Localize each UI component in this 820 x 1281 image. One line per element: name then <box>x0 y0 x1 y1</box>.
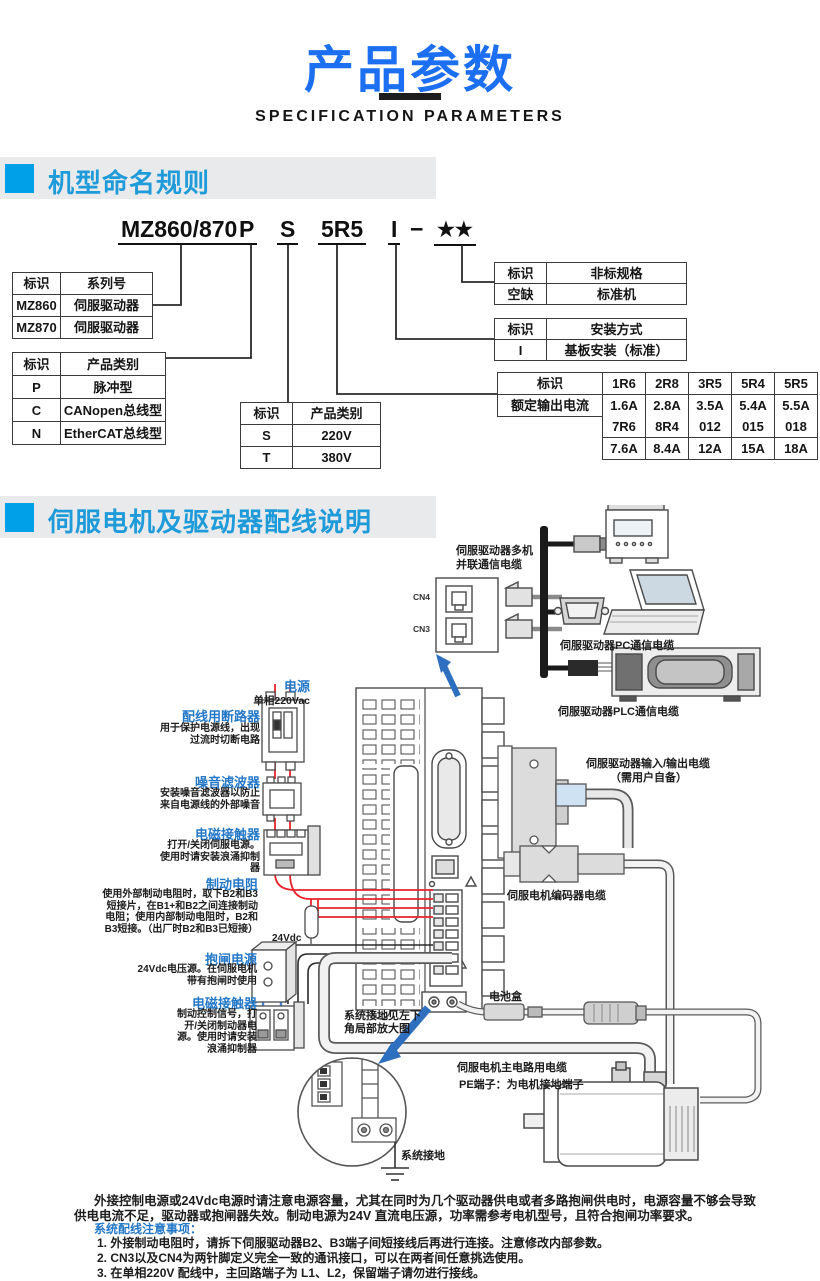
table-cell: 1.6A <box>603 395 646 417</box>
table-header-cell: 标识 <box>495 263 547 284</box>
table-voltage: 标识 产品类别 S 220V T 380V <box>240 402 381 469</box>
section-naming-bar: 机型命名规则 <box>0 157 436 199</box>
table-header-cell: 系列号 <box>61 273 153 295</box>
label-main-cable-line1: 伺服电机主电路用电缆 <box>457 1059 567 1075</box>
contactor-2 <box>250 1002 304 1050</box>
label-filter-desc: 安装噪音滤波器以防止来自电源线的外部噪音 <box>160 788 260 811</box>
label-24vdc: 24Vdc <box>272 933 301 944</box>
table-cell: 5.4A <box>732 395 775 417</box>
brake-power-supply <box>252 942 296 1002</box>
table-cell: 2.8A <box>646 395 689 417</box>
table-cell: 脉冲型 <box>61 376 166 399</box>
io-connector <box>498 746 586 858</box>
table-cell: EtherCAT总线型 <box>61 422 166 445</box>
table-header-cell: 标识 <box>13 273 61 295</box>
label-main-cable-line2: PE端子：为电机接地端子 <box>459 1076 584 1092</box>
table-cell: I <box>495 340 547 361</box>
ground-detail-circle <box>298 1058 409 1180</box>
wiring-diagram <box>0 505 820 1200</box>
table-cell: 12A <box>689 438 732 460</box>
table-cell: N <box>13 422 61 445</box>
table-current-upper: 标识 1R6 2R8 3R5 5R4 5R5 额定输出电流 1.6A 2.8A … <box>497 372 818 417</box>
label-pc-cable: 伺服驱动器PC通信电缆 <box>560 637 674 653</box>
page-title: 产品参数 <box>0 30 820 102</box>
label-cn3-port: CN3 <box>413 624 430 634</box>
table-header-cell: 018 <box>775 416 818 438</box>
section-square-icon <box>5 164 34 193</box>
table-cell: 标准机 <box>547 284 687 305</box>
label-system-ground: 系统接地 <box>401 1147 445 1163</box>
table-cell: S <box>241 425 293 447</box>
table-header-cell: 标识 <box>13 353 61 376</box>
table-header-cell: 1R6 <box>603 373 646 395</box>
label-multi-drive-line2: 并联通信电缆 <box>456 556 522 572</box>
table-cell: CANopen总线型 <box>61 399 166 422</box>
table-header-cell: 012 <box>689 416 732 438</box>
page-subtitle: SPECIFICATION PARAMETERS <box>0 108 820 126</box>
table-header-cell: 产品类别 <box>293 403 381 425</box>
label-contactor1-desc: 打开/关闭伺服电源。使用时请安装浪涌抑制器 <box>160 840 260 875</box>
table-header-cell: 产品类别 <box>61 353 166 376</box>
table-cell: 15A <box>732 438 775 460</box>
table-cell: MZ870 <box>13 317 61 339</box>
section-naming-heading: 机型命名规则 <box>48 163 210 200</box>
table-mounting: 标识 安装方式 I 基板安装（标准） <box>494 318 687 361</box>
noise-filter <box>263 777 301 821</box>
table-cell: 伺服驱动器 <box>61 295 153 317</box>
table-cell: C <box>13 399 61 422</box>
table-header-cell: 安装方式 <box>547 319 687 340</box>
label-battery-box: 电池盒 <box>489 988 522 1004</box>
label-encoder-cable: 伺服电机编码器电缆 <box>507 887 606 903</box>
table-product-type: 标识 产品类别 P 脉冲型 C CANopen总线型 N EtherCAT总线型 <box>12 352 166 445</box>
encoder-connector <box>504 846 624 882</box>
label-ground-note: 系统接地见左下角局部放大图 <box>344 1010 430 1036</box>
label-plc-cable: 伺服驱动器PLC通信电缆 <box>558 703 679 719</box>
table-cell: 空缺 <box>495 284 547 305</box>
contactor-1 <box>264 826 320 875</box>
table-header-cell: 非标规格 <box>547 263 687 284</box>
table-header-cell: 标识 <box>241 403 293 425</box>
label-power-sub: 单相220Vac <box>253 693 310 708</box>
table-cell: 18A <box>775 438 818 460</box>
table-cell: MZ860 <box>13 295 61 317</box>
table-series: 标识 系列号 MZ860 伺服驱动器 MZ870 伺服驱动器 <box>12 272 153 339</box>
table-header-cell: 标识 <box>498 373 603 395</box>
label-resistor-desc: 使用外部制动电阻时，取下B2和B3短接片，在B1+和B2之间连接制动电阻；使用内… <box>98 889 258 935</box>
table-header-cell: 8R4 <box>646 416 689 438</box>
table-header-cell: 3R5 <box>689 373 732 395</box>
table-nonstandard: 标识 非标规格 空缺 标准机 <box>494 262 687 305</box>
table-cell: 3.5A <box>689 395 732 417</box>
table-header-cell: 2R8 <box>646 373 689 395</box>
table-current-lower: 7R6 8R4 012 015 018 7.6A 8.4A 12A 15A 18… <box>602 416 818 460</box>
table-cell: 7.6A <box>603 438 646 460</box>
label-cn4-port: CN4 <box>413 592 430 602</box>
title-underline-bar <box>379 93 441 100</box>
table-cell: 伺服驱动器 <box>61 317 153 339</box>
table-cell: 220V <box>293 425 381 447</box>
label-breaker-desc: 用于保护电源线，出现过流时切断电路 <box>154 723 260 746</box>
label-contactor2-desc: 制动控制信号，打开/关闭制动器电源。使用时请安装浪涌抑制器 <box>173 1009 257 1055</box>
table-header-cell: 标识 <box>495 319 547 340</box>
product-spec-page: 产品参数 SPECIFICATION PARAMETERS 机型命名规则 MZ8… <box>0 0 820 1281</box>
comm-cable-cluster <box>436 505 760 701</box>
table-cell: P <box>13 376 61 399</box>
table-cell: 5.5A <box>775 395 818 417</box>
servo-drive-unit <box>356 688 504 1019</box>
table-header-cell: 5R5 <box>775 373 818 395</box>
table-cell: 基板安装（标准） <box>547 340 687 361</box>
table-header-cell: 7R6 <box>603 416 646 438</box>
braking-resistor <box>305 906 318 944</box>
model-code-dash: − <box>410 216 423 242</box>
table-header-cell: 5R4 <box>732 373 775 395</box>
table-cell: 380V <box>293 447 381 469</box>
table-cell: T <box>241 447 293 469</box>
table-cell: 8.4A <box>646 438 689 460</box>
label-io-cable-line2: （需用户自备） <box>610 769 687 785</box>
table-cell: 额定输出电流 <box>498 395 603 417</box>
label-brake-psu-desc: 24Vdc电压源。在伺服电机带有抱闸时使用 <box>129 964 257 987</box>
table-header-cell: 015 <box>732 416 775 438</box>
